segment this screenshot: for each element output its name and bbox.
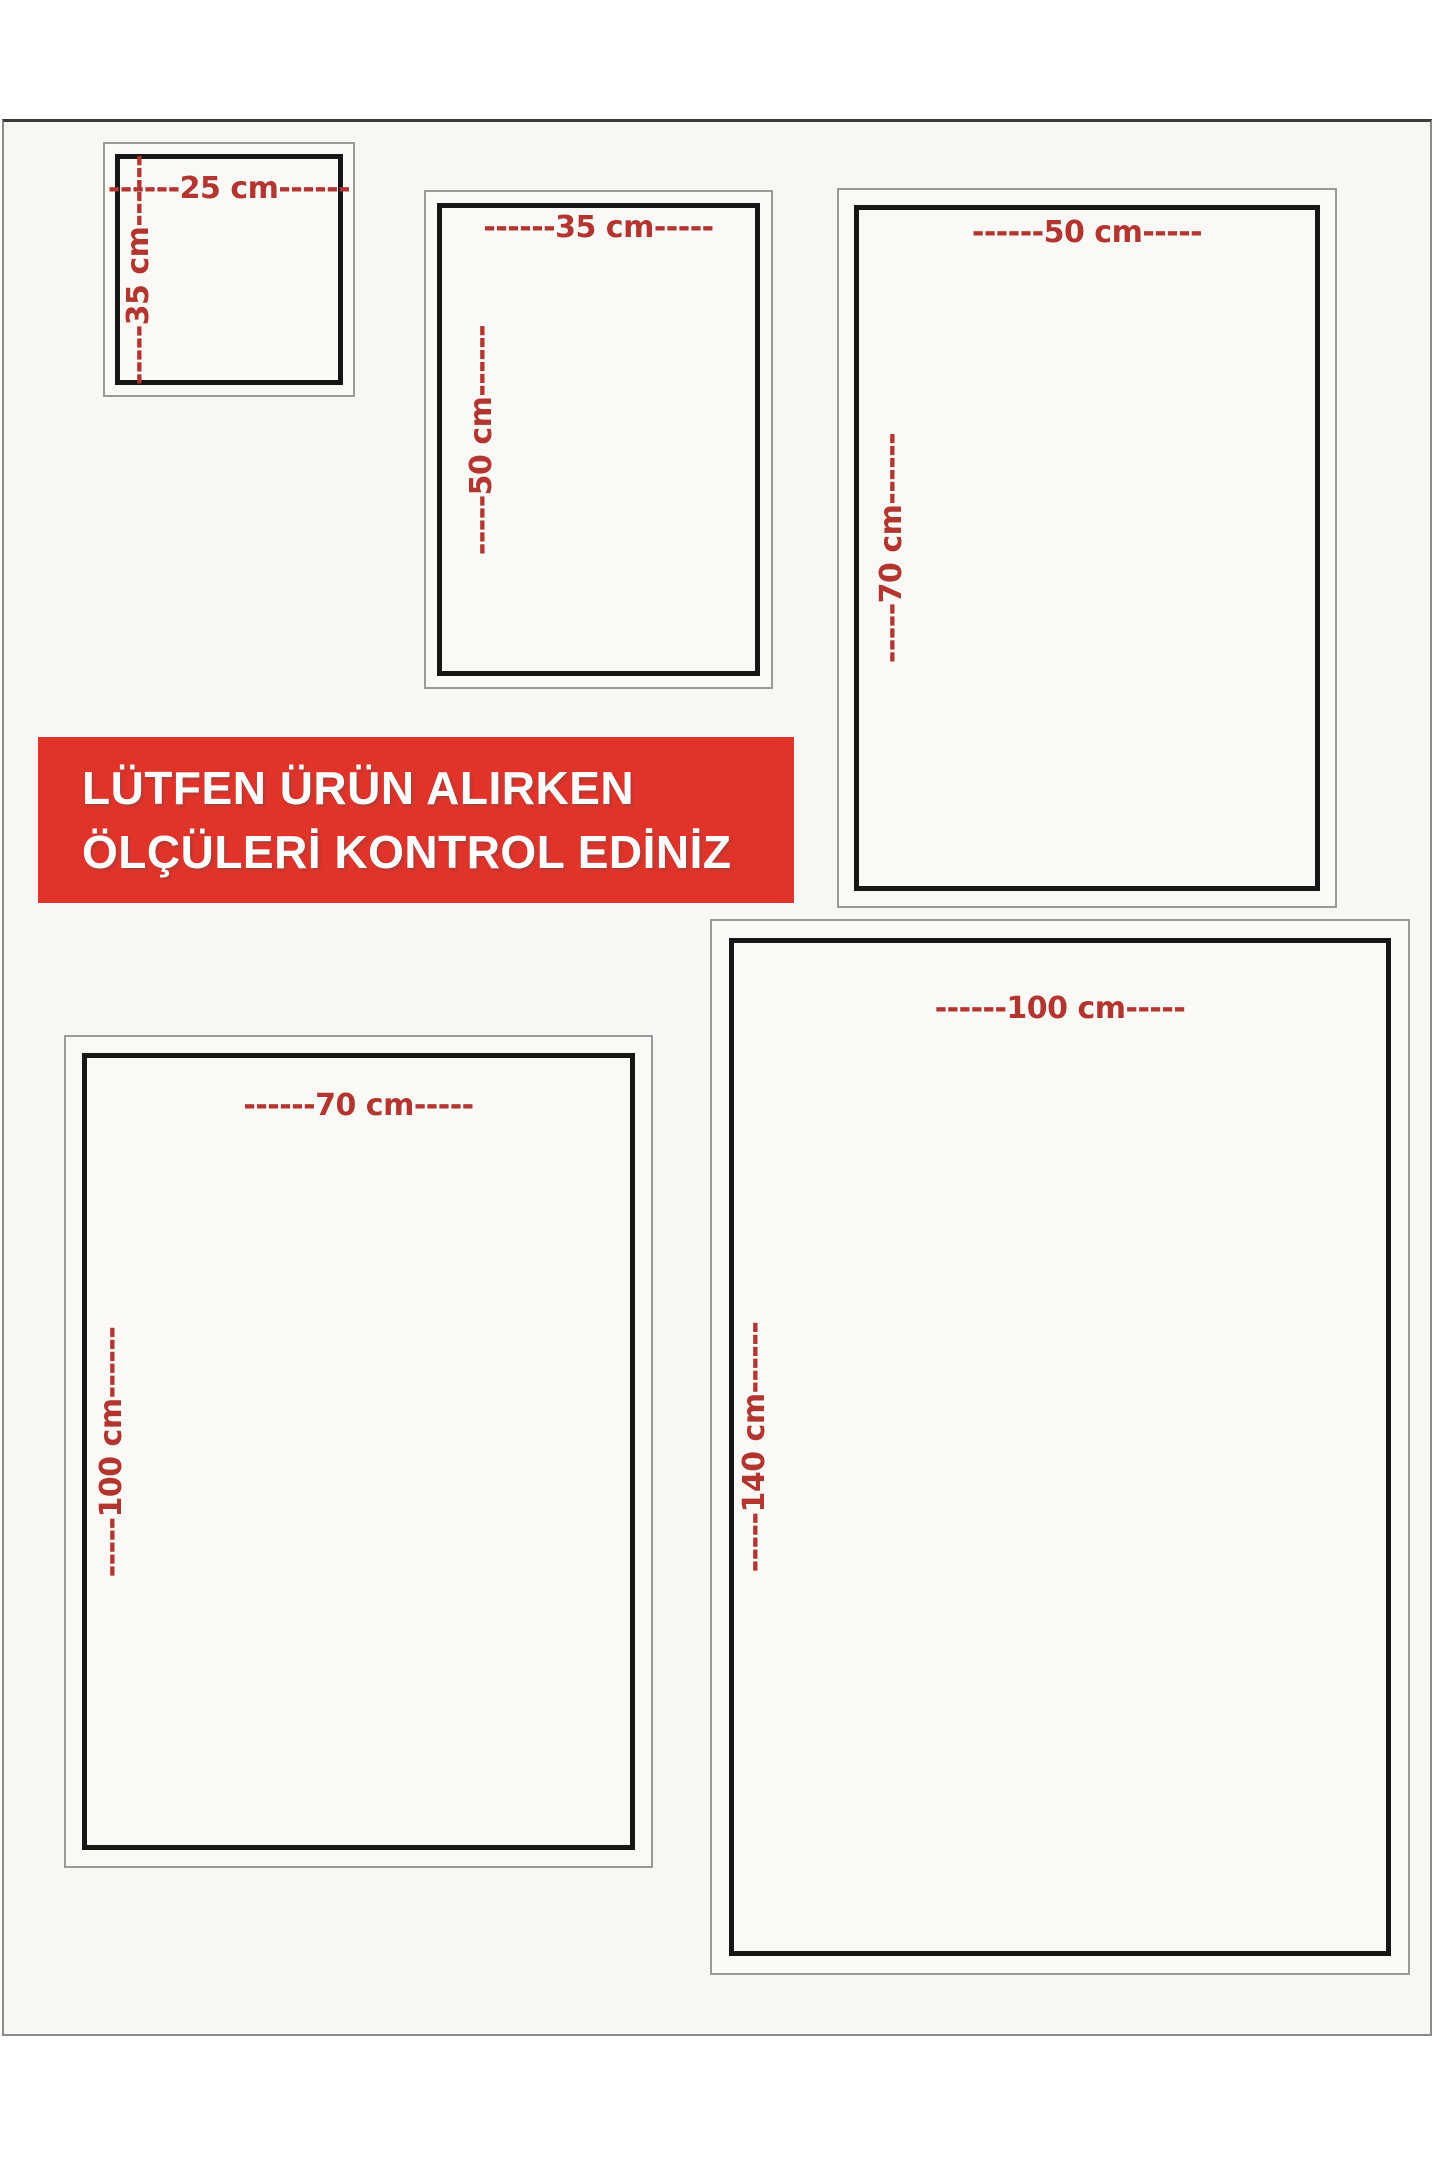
- warning-banner: LÜTFEN ÜRÜN ALIRKEN ÖLÇÜLERİ KONTROL EDİ…: [38, 737, 794, 903]
- warning-banner-line1: LÜTFEN ÜRÜN ALIRKEN: [82, 756, 794, 820]
- width-label-50cm: ------50 cm-----: [972, 218, 1202, 248]
- size-box-50x70-frame: [854, 205, 1320, 891]
- warning-banner-line2: ÖLÇÜLERİ KONTROL EDİNİZ: [82, 820, 794, 884]
- size-box-70x100-frame: [82, 1053, 635, 1850]
- width-label-100cm: ------100 cm-----: [935, 994, 1186, 1024]
- size-guide-image: ------25 cm------ -----35 cm------ -----…: [0, 0, 1440, 2160]
- height-label-140cm: -----140 cm------: [740, 1322, 770, 1573]
- height-label-50cm: -----50 cm------: [467, 324, 497, 554]
- size-box-35x50: ------35 cm----- -----50 cm------: [424, 190, 773, 689]
- size-box-50x70: ------50 cm----- -----70 cm------: [837, 188, 1337, 908]
- height-label-70cm: -----70 cm------: [877, 433, 907, 663]
- size-box-100x140: ------100 cm----- -----140 cm------: [710, 919, 1410, 1975]
- width-label-70cm: ------70 cm-----: [243, 1091, 473, 1121]
- size-box-70x100: ------70 cm----- -----100 cm------: [64, 1035, 653, 1868]
- width-label-35cm: ------35 cm-----: [483, 213, 713, 243]
- height-label-100cm: -----100 cm------: [97, 1326, 127, 1577]
- size-box-100x140-frame: [729, 938, 1391, 1956]
- size-box-25x35: ------25 cm------ -----35 cm------: [103, 142, 355, 397]
- height-label-35cm: -----35 cm------: [124, 154, 154, 384]
